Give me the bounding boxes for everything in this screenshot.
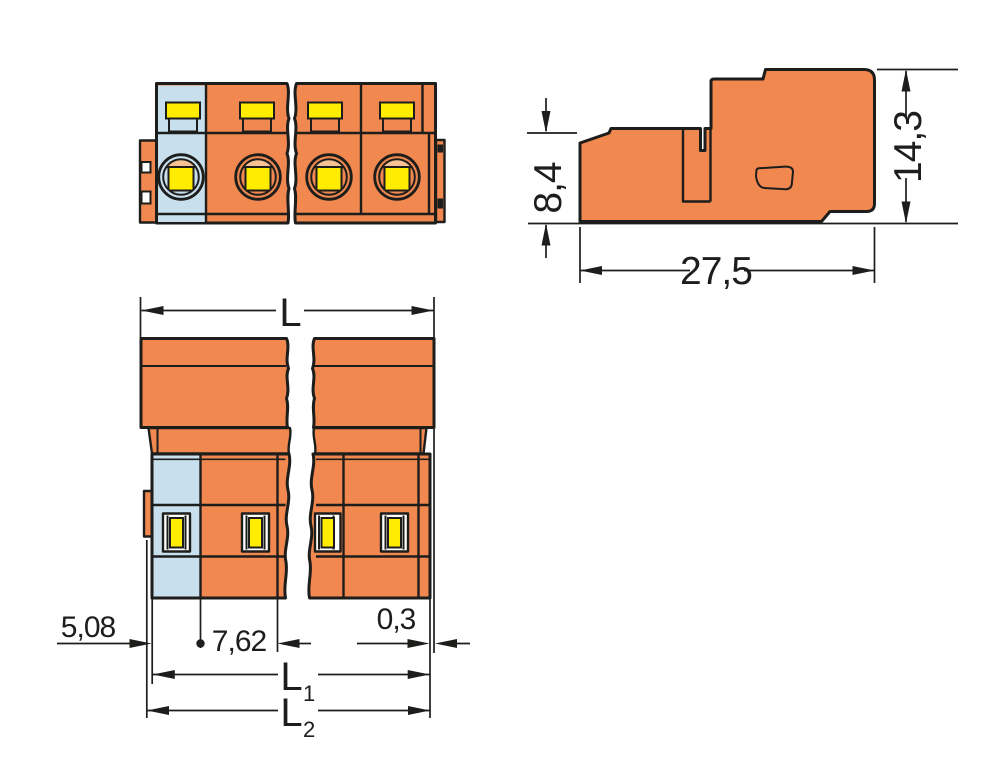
top-view: L [57,291,470,742]
dim-l1-subscript: 1 [303,681,315,706]
pin-shroud-right-fragment [313,339,435,428]
latch-body [140,141,157,223]
connector-dimensional-drawing: 8,4 14,3 27,5 L [0,0,984,767]
dim-l2-label: L [280,691,301,735]
dim-height-front: 8,4 [527,98,570,258]
pin-slot [163,514,190,552]
wire-slot [380,103,414,119]
dim-end-gap-label: 0,3 [377,603,416,636]
dim-length: L [142,291,434,335]
wire-slot [240,103,274,119]
front-view [140,84,445,224]
dim-height-front-label: 8,4 [527,162,570,214]
collar-right-fragment [314,428,427,454]
dim-end-gap: 0,3 [357,603,470,648]
pin-slot [315,514,341,552]
pin-slot [381,514,408,552]
technical-drawing-canvas: 8,4 14,3 27,5 L [0,0,984,767]
front-right-latch [436,140,445,222]
pin-slot [242,514,269,552]
dim-l2: L 2 [147,691,430,742]
dim-pitch: 7,62 [196,625,311,658]
wire-slot [166,103,200,119]
front-left-latch [140,141,157,223]
latch-notch [438,199,444,209]
dim-pin-offset: 5,08 [57,611,152,648]
dim-length-label: L [279,291,300,335]
dim-pin-offset-label: 5,08 [61,611,116,644]
dim-depth-label: 27,5 [680,250,752,293]
dim-height-total: 14,3 [887,70,930,224]
dim-origin-dot [196,639,204,647]
latch-notch [142,162,151,173]
side-view: 8,4 14,3 27,5 [527,70,958,294]
latch-notch [438,145,444,153]
side-housing-profile [580,70,875,222]
pin-shroud-left-fragment [141,339,289,428]
collar-left-fragment [149,428,291,454]
latch-notch [142,192,151,204]
dim-pitch-label: 7,62 [212,625,267,658]
dim-l2-subscript: 2 [303,717,315,742]
dim-height-total-label: 14,3 [887,111,930,183]
dim-depth: 27,5 [580,250,875,293]
wire-slot [308,103,342,119]
